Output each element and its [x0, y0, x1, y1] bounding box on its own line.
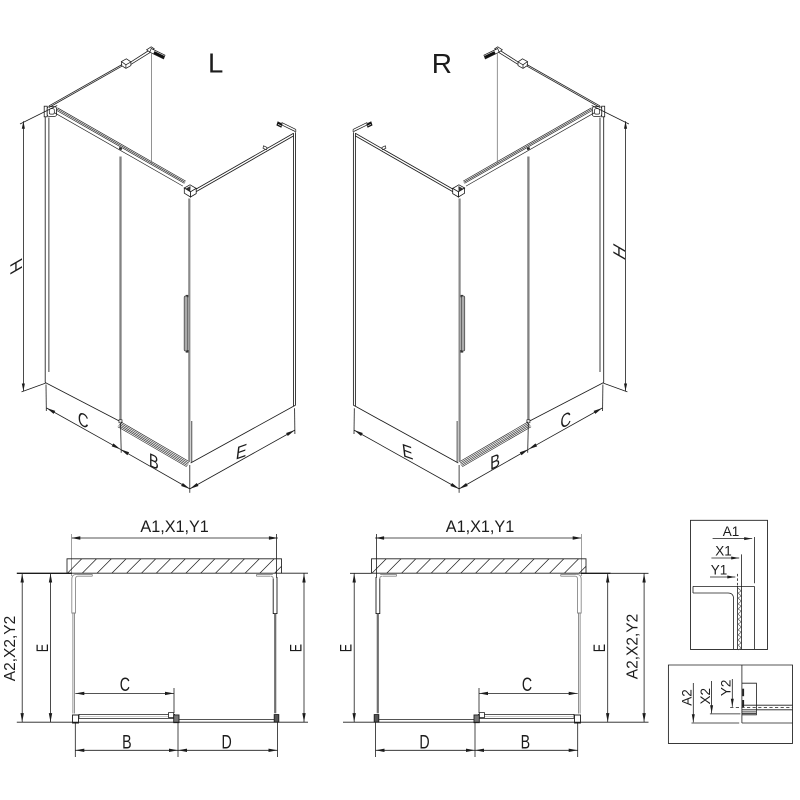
- svg-text:B: B: [122, 731, 131, 753]
- svg-text:Y1: Y1: [711, 563, 728, 578]
- svg-text:A2,X2,Y2: A2,X2,Y2: [625, 614, 642, 680]
- svg-text:B: B: [149, 449, 159, 475]
- svg-text:X2: X2: [698, 688, 713, 705]
- svg-text:B: B: [490, 449, 500, 475]
- svg-text:X1: X1: [715, 544, 732, 559]
- svg-text:C: C: [522, 674, 532, 696]
- svg-text:A2,X2,Y2: A2,X2,Y2: [2, 616, 19, 682]
- svg-text:E: E: [591, 644, 609, 652]
- svg-text:C: C: [120, 674, 130, 696]
- svg-text:R: R: [432, 48, 452, 79]
- svg-text:A1,X1,Y1: A1,X1,Y1: [446, 518, 514, 536]
- svg-text:E: E: [288, 644, 306, 652]
- svg-text:E: E: [338, 644, 356, 652]
- svg-text:Y2: Y2: [719, 680, 734, 697]
- svg-text:E: E: [34, 644, 52, 652]
- svg-text:L: L: [208, 48, 223, 79]
- svg-text:A1: A1: [723, 524, 740, 539]
- svg-text:A2: A2: [680, 689, 695, 706]
- svg-text:D: D: [221, 731, 231, 753]
- svg-text:A1,X1,Y1: A1,X1,Y1: [140, 518, 208, 536]
- svg-text:B: B: [521, 731, 530, 753]
- svg-text:D: D: [419, 731, 429, 753]
